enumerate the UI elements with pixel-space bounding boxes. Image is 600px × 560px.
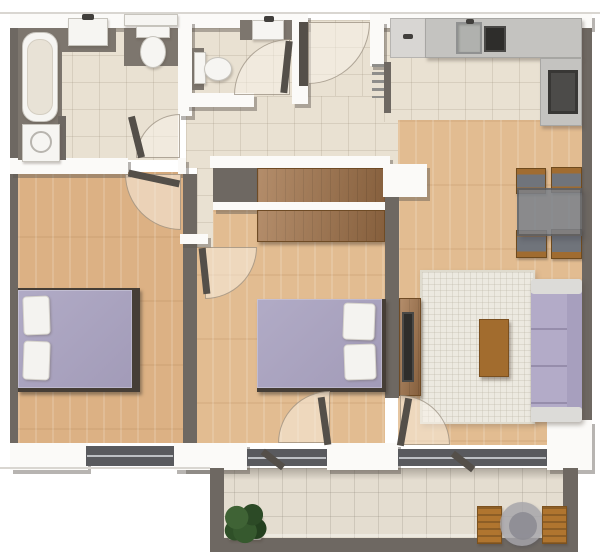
bedroom1-bottom-wall-left [10, 443, 88, 470]
sofa-back [567, 287, 582, 415]
living-bottom-wall [547, 420, 592, 470]
hall-wardrobe [257, 168, 387, 204]
bathroom-bottom-wall-cap [178, 158, 186, 174]
kitchen-oven [548, 70, 578, 114]
kitchen-faucet [466, 19, 474, 24]
kitchen-cooktop [484, 26, 506, 52]
bedroom2-bottom-wall-right [327, 443, 398, 470]
bathtub-inner [27, 39, 53, 115]
left-hairline [0, 467, 210, 469]
living-wall-corner [383, 164, 427, 197]
bed2-pillow-top [342, 302, 375, 340]
wc-sink [252, 20, 284, 40]
bed1-pillow-bottom [22, 341, 50, 381]
sofa-seat [531, 293, 569, 407]
bed2-pillow-bottom [343, 343, 376, 380]
right-outer-wall [582, 28, 592, 420]
bedroom2-balcony-door-glass [247, 449, 327, 466]
kitchen-west-wall [384, 62, 391, 113]
dining-table [517, 188, 582, 236]
front-door-leaf [299, 22, 308, 86]
bedroom-divider-cap [180, 234, 208, 244]
bedroom2-wardrobe [257, 210, 385, 242]
bedroom2-bottom-wall-left [183, 443, 247, 470]
balcony-chair-right [542, 506, 567, 544]
wardrobe-niche-top-wall [210, 156, 390, 168]
sofa-armrest-top [531, 279, 582, 294]
tv [402, 312, 414, 382]
bedroom-divider-wall [183, 174, 197, 443]
wardrobe-niche-mid-wall [213, 202, 390, 210]
bedroom1-window [86, 446, 174, 466]
balcony-plant [222, 500, 268, 546]
bath-faucet [82, 14, 94, 20]
left-outer-wall [10, 28, 18, 443]
bed1-pillow-top [22, 296, 50, 336]
living-rug [420, 270, 535, 424]
wc-toilet-bowl [204, 57, 232, 81]
living-balcony-window [398, 449, 547, 466]
bath-sink [68, 18, 108, 46]
wc-faucet [264, 16, 274, 22]
coffee-table [479, 319, 509, 377]
entry-coat-rack [372, 64, 384, 98]
floor-plan [0, 0, 600, 560]
balcony-table-top [509, 512, 537, 540]
balcony-wall-left [210, 468, 224, 548]
bath-toilet-shelf [124, 14, 178, 26]
sofa-armrest-bottom [531, 407, 582, 422]
wc-bottom-wall [186, 93, 254, 107]
balcony-chair-left [477, 506, 502, 544]
kitchen-sink [456, 22, 482, 54]
bath-toilet-bowl [140, 36, 166, 68]
kitchen-cabinet-handle [403, 34, 413, 39]
bedroom2-living-wall [385, 197, 399, 398]
washing-machine-door [30, 131, 52, 153]
entry-right-wall [370, 20, 384, 66]
